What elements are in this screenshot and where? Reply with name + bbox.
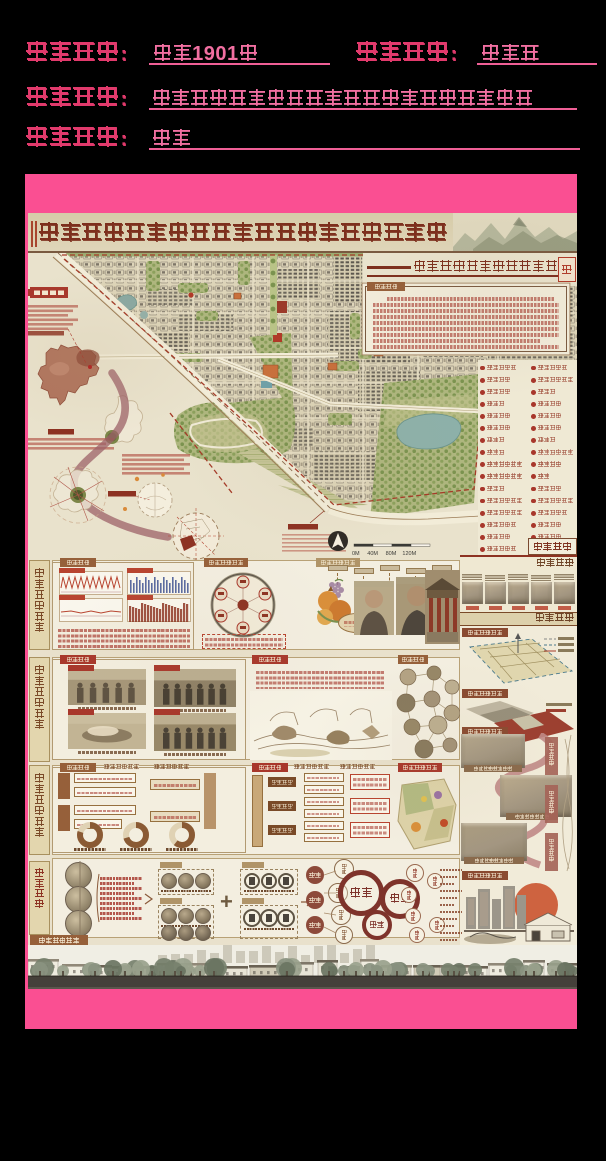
svg-text:0M 40M 80M 120M: 0M 40M 80M 120M [352, 551, 417, 557]
